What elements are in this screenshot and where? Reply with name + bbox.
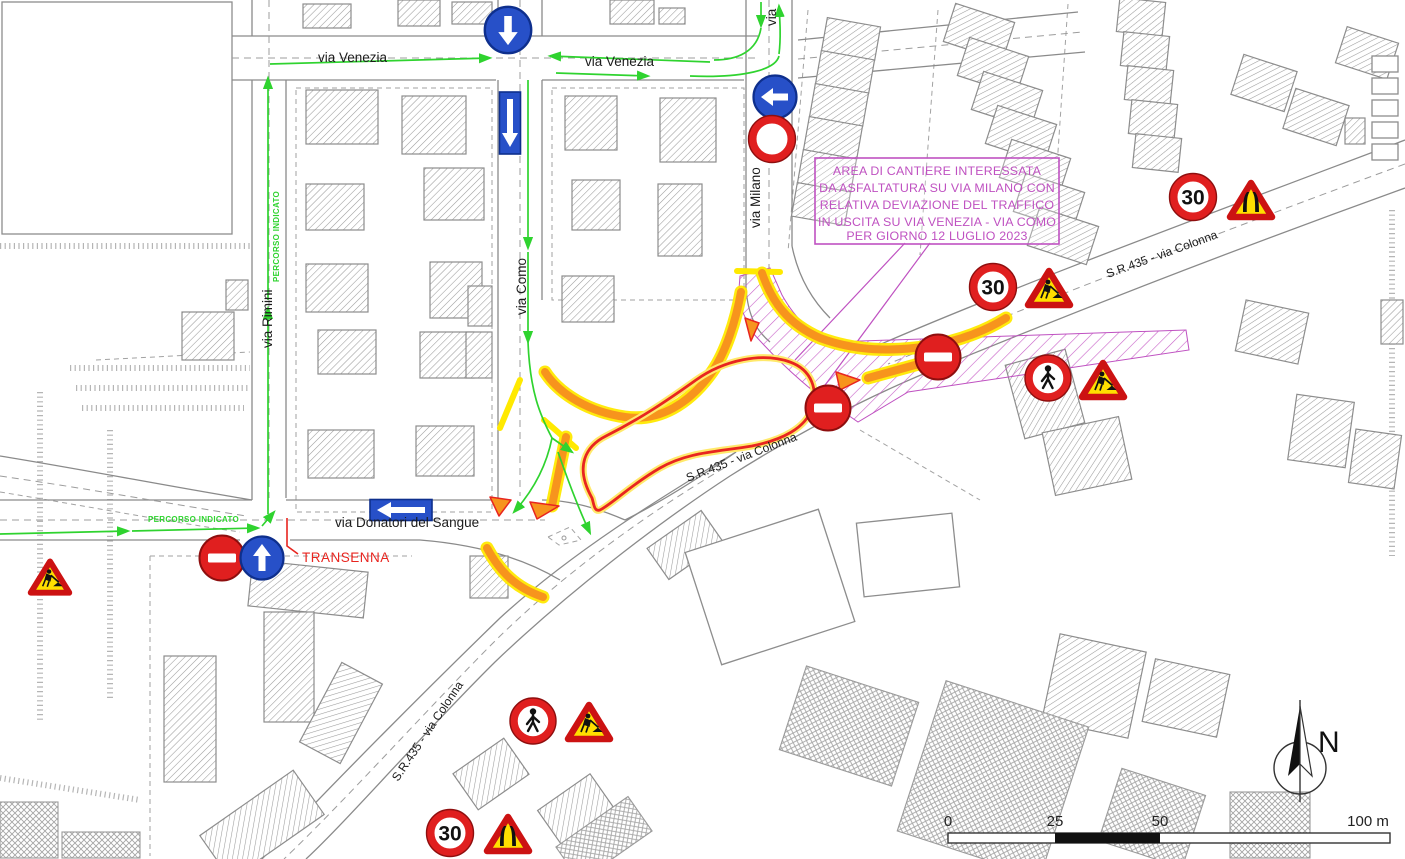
- annotation-line: PER GIORNO 12 LUGLIO 2023: [846, 229, 1027, 243]
- north-arrow-dark-half: [1288, 706, 1300, 776]
- speed-limit-value: 30: [438, 823, 461, 846]
- detour-label-percorso-vertical: PERCORSO INDICATO: [272, 191, 281, 282]
- speed-limit-30-sign-icon: 30: [427, 810, 474, 857]
- transenna-leader-line: [287, 518, 298, 554]
- street-label-via-rimini: via Rimini: [260, 289, 275, 348]
- scale-bar-segment: [1055, 833, 1160, 843]
- traffic-plan-page: 30 30 30 via Venezia via Venezia via Rim…: [0, 0, 1405, 859]
- no-entry-sign-icon: [806, 386, 851, 431]
- road-narrows-sign-icon: [1230, 183, 1272, 217]
- north-arrow-light-half: [1300, 706, 1312, 776]
- roadworks-sign-icon: [31, 562, 70, 593]
- road-narrows-sign-icon: [487, 817, 529, 851]
- transenna-label: TRANSENNA: [302, 550, 390, 565]
- annotation-line: DA ASFALTATURA SU VIA MILANO CON: [819, 181, 1055, 195]
- speed-limit-value: 30: [1181, 187, 1204, 210]
- sports-field-parcel: [2, 2, 232, 234]
- scale-tick-50: 50: [1152, 813, 1169, 830]
- north-label: N: [1318, 726, 1340, 759]
- scale-tick-25: 25: [1047, 813, 1064, 830]
- street-label-sr435-ne: S.R.435 - via Colonna: [1104, 227, 1219, 280]
- speed-limit-30-sign-icon: 30: [970, 264, 1017, 311]
- detour-label-percorso-horizontal: PERCORSO INDICATO: [148, 515, 239, 524]
- annotation-line: IN USCITA SU VIA VENEZIA - VIA COMO: [818, 215, 1056, 229]
- street-label-via-venezia-east: via Venezia: [585, 54, 655, 69]
- street-label-via-donatori: via Donatori del Sangue: [335, 515, 479, 530]
- north-arrow: N: [1274, 700, 1340, 802]
- scale-tick-0: 0: [944, 813, 952, 830]
- street-label-via-como: via Como: [514, 258, 529, 315]
- scale-tick-100: 100 m: [1347, 813, 1389, 830]
- speed-limit-value: 30: [981, 277, 1004, 300]
- mandatory-straight-down-sign-icon: [485, 7, 531, 53]
- roadworks-sign-icon: [1028, 271, 1070, 305]
- street-label-via-venezia-west: via Venezia: [318, 50, 388, 65]
- traffic-plan-map: 30 30 30 via Venezia via Venezia via Rim…: [0, 0, 1405, 859]
- annotation-line: AREA DI CANTIERE INTERESSATA: [833, 164, 1042, 178]
- closure-loop-halo: [583, 358, 814, 511]
- works-wedge: [490, 497, 511, 516]
- no-entry-sign-icon: [916, 335, 961, 380]
- street-label-via-partial: via: [764, 8, 779, 26]
- no-entry-sign-icon: [200, 536, 245, 581]
- speed-limit-30-sign-icon: 30: [1170, 174, 1217, 221]
- mandatory-left-sign-icon: [754, 76, 797, 119]
- roadworks-sign-icon: [568, 705, 610, 739]
- street-label-sr435-sw: S.R.435 - via Colonna: [389, 678, 466, 783]
- roadworks-sign-icon: [1082, 363, 1124, 397]
- no-pedestrians-sign-icon: [1025, 355, 1071, 401]
- one-way-down-sign-icon: [500, 92, 521, 154]
- no-vehicles-sign-icon: [749, 116, 796, 163]
- annotation-box: AREA DI CANTIERE INTERESSATA DA ASFALTAT…: [815, 158, 1059, 244]
- street-label-via-milano: via Milano: [748, 167, 763, 228]
- mandatory-straight-up-sign-icon: [241, 537, 284, 580]
- scale-bar-track: [948, 833, 1390, 843]
- annotation-line: RELATIVA DEVIAZIONE DEL TRAFFICO: [820, 198, 1055, 212]
- no-pedestrians-sign-icon: [510, 698, 556, 744]
